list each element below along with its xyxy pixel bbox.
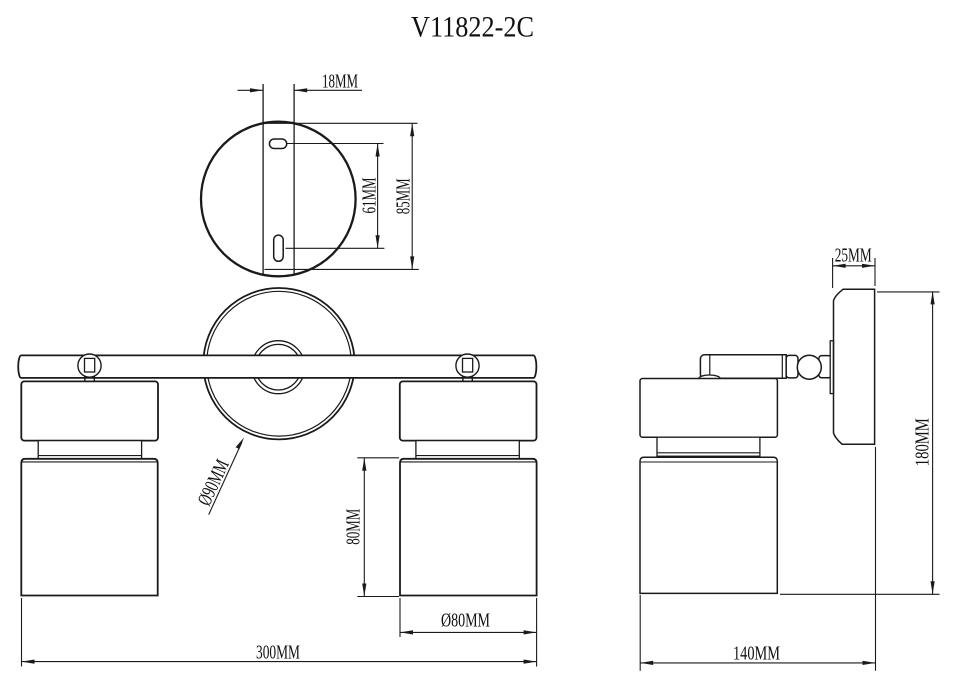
svg-text:80MM: 80MM <box>343 509 365 545</box>
svg-text:300MM: 300MM <box>256 642 300 664</box>
svg-text:85MM: 85MM <box>393 178 415 214</box>
svg-text:V11822-2C: V11822-2C <box>411 11 534 44</box>
svg-text:25MM: 25MM <box>835 245 872 267</box>
svg-text:180MM: 180MM <box>912 418 934 466</box>
svg-text:Ø80MM: Ø80MM <box>441 610 490 632</box>
svg-text:140MM: 140MM <box>733 643 780 665</box>
svg-text:18MM: 18MM <box>322 71 358 93</box>
svg-text:61MM: 61MM <box>359 177 381 213</box>
